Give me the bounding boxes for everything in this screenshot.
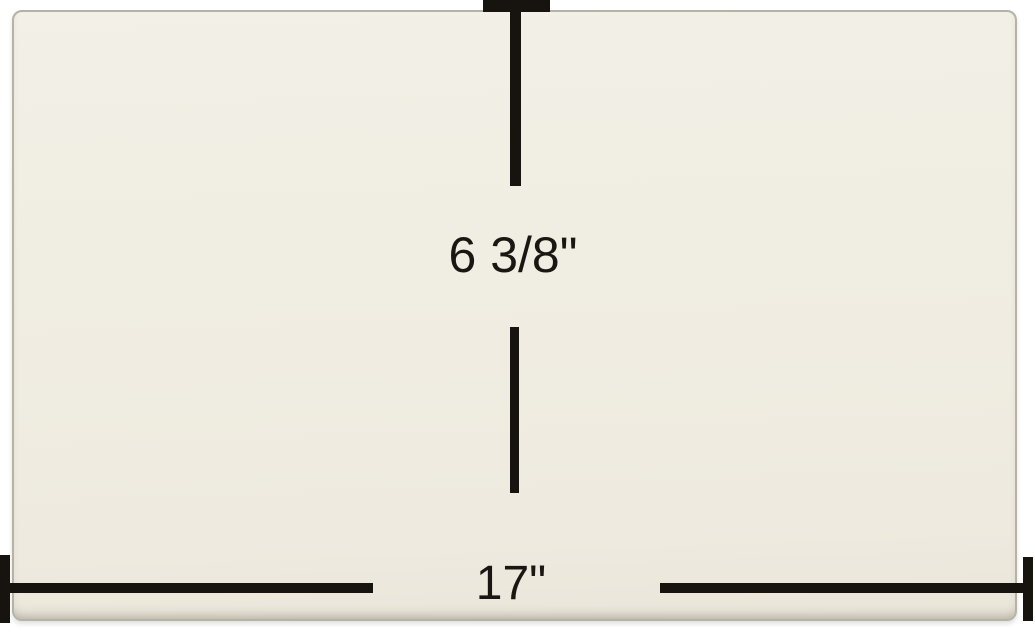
width-dimension-right-cap: [1023, 557, 1033, 621]
width-dimension-line-right: [660, 583, 1025, 593]
product-dimension-diagram: 6 3/8" 17": [0, 0, 1035, 635]
height-dimension-line-upper: [510, 8, 521, 186]
width-dimension-label: 17": [476, 560, 546, 608]
height-dimension-line-lower: [510, 327, 519, 493]
width-dimension-line-left: [3, 583, 373, 593]
height-dimension-label: 6 3/8": [449, 230, 578, 280]
